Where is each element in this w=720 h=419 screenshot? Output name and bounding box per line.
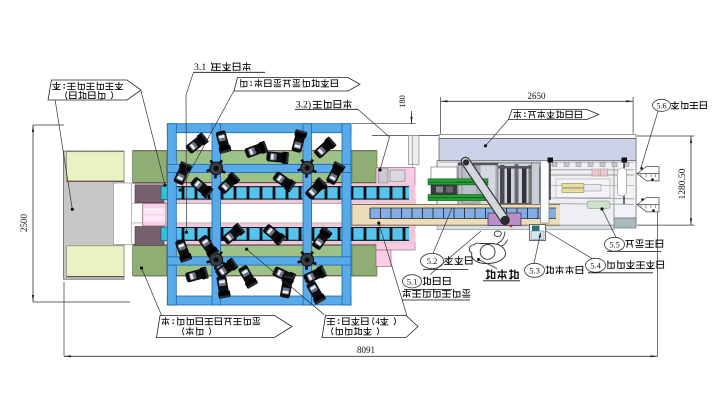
svg-text:2500: 2500 — [19, 214, 29, 233]
svg-text:180: 180 — [397, 95, 407, 108]
svg-text:5.6: 5.6 — [656, 101, 666, 110]
svg-text:5.5: 5.5 — [609, 239, 620, 249]
svg-text:5.2: 5.2 — [427, 256, 438, 266]
svg-text:3.1: 3.1 — [194, 62, 206, 73]
svg-text:1280.50: 1280.50 — [678, 168, 688, 199]
svg-text:4: 4 — [375, 316, 380, 326]
svg-text:2650: 2650 — [528, 91, 547, 101]
svg-text:5.1: 5.1 — [407, 276, 418, 286]
svg-text:8091: 8091 — [357, 345, 375, 355]
svg-text:5.4: 5.4 — [590, 260, 601, 270]
svg-text:5.3: 5.3 — [529, 265, 540, 275]
svg-text:3.2): 3.2) — [296, 99, 311, 110]
